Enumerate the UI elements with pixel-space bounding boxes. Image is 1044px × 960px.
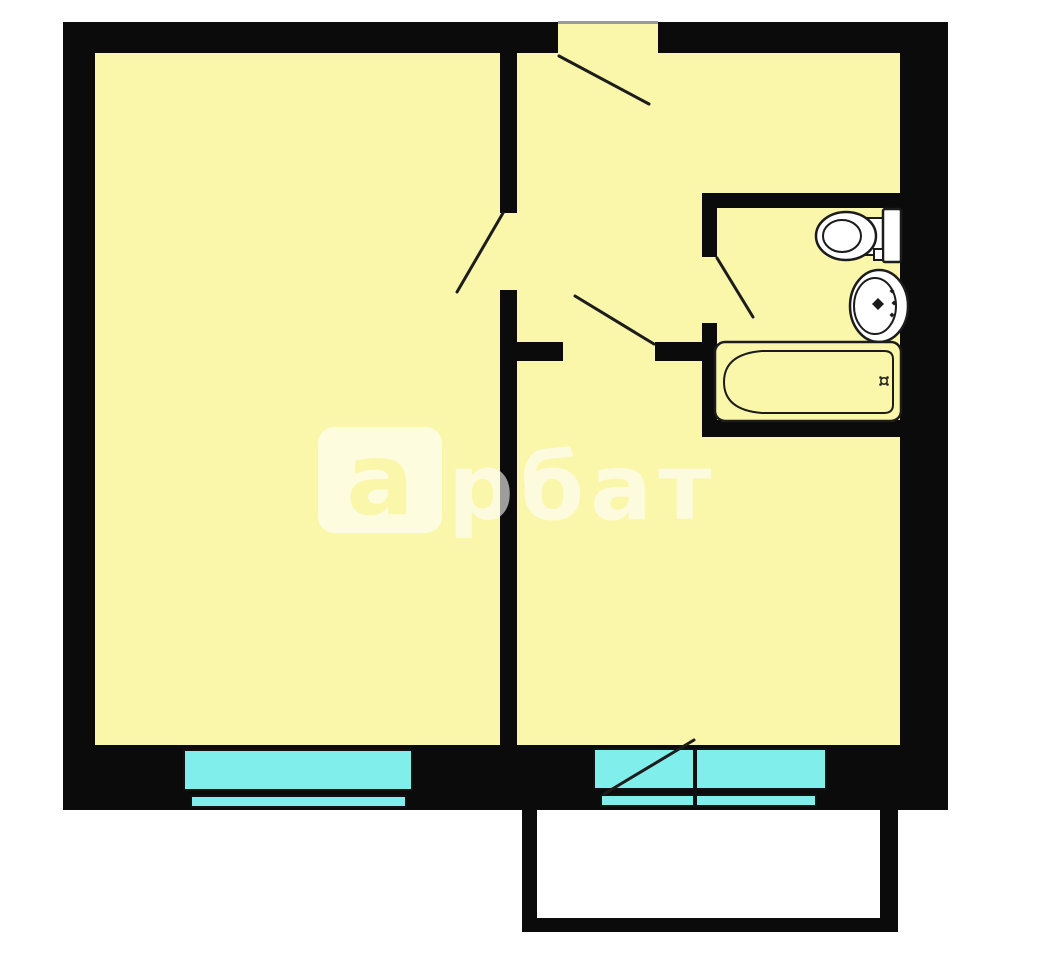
wall-middle-vertical-upper (500, 50, 517, 213)
window-left-sill (190, 795, 407, 808)
wall-balcony-bottom (522, 918, 898, 932)
wall-bathroom-top (702, 193, 900, 208)
window-mullion (693, 748, 697, 808)
entrance-opening (558, 24, 658, 52)
floor-plan: а рбат (0, 0, 1044, 960)
wall-balcony-left (522, 810, 537, 932)
watermark-logo: а (318, 427, 442, 533)
window-right-glass (593, 748, 827, 790)
apartment-interior (95, 50, 900, 745)
wall-left (63, 22, 95, 810)
watermark-text: рбат (448, 442, 718, 534)
wall-balcony-right (880, 810, 898, 932)
wall-right (900, 22, 948, 810)
watermark: а рбат (318, 420, 718, 555)
window-right-sill (600, 794, 817, 807)
window-left-glass (183, 749, 413, 791)
balcony-area (537, 810, 880, 918)
wall-hall-stub-left (517, 342, 563, 361)
wall-bathroom-bottom (702, 420, 900, 437)
wall-top-left (63, 22, 558, 53)
wall-bathroom-left-upper (702, 193, 717, 257)
wall-hall-stub-right (655, 342, 703, 361)
entrance-threshold (558, 21, 658, 24)
watermark-logo-letter: а (346, 430, 413, 530)
